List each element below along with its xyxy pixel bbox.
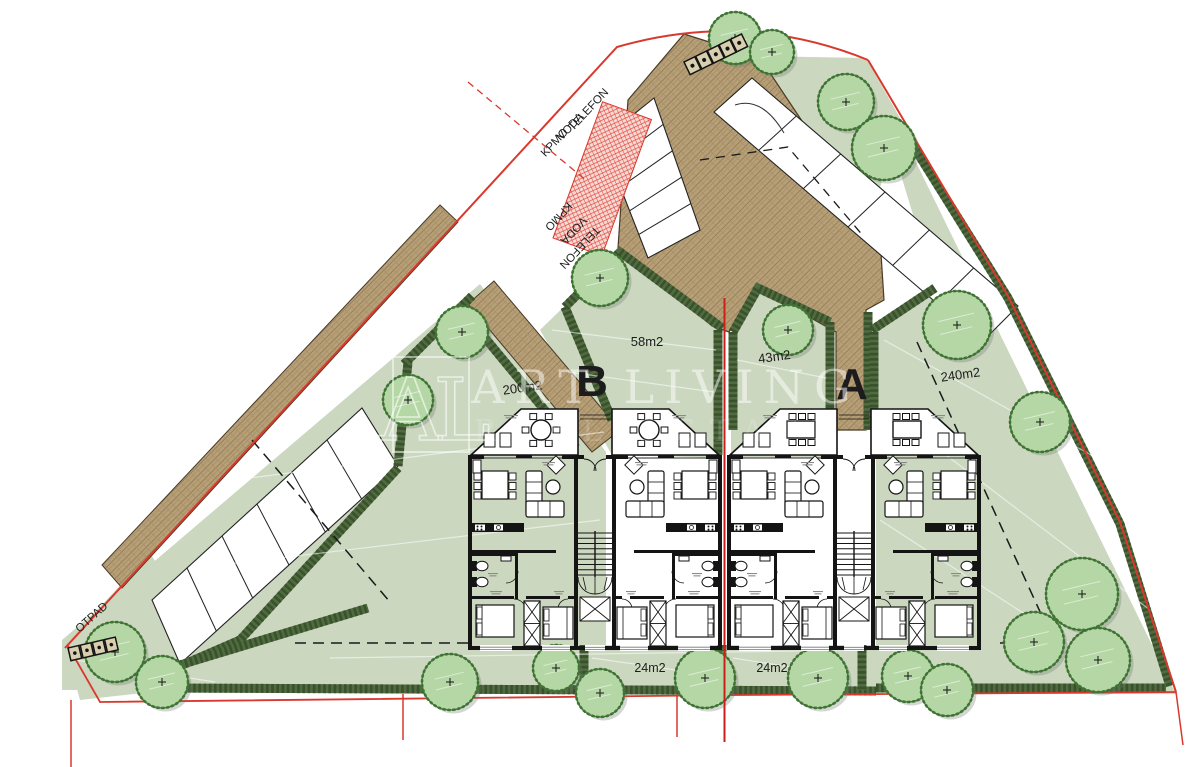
site-plan-image: BA200m258m243m2240m224m224m2TELEFONVODAK…: [0, 0, 1200, 767]
site-plan-svg: BA200m258m243m2240m224m224m2TELEFONVODAK…: [0, 0, 1200, 767]
building-label-A: A: [836, 360, 868, 409]
building-label-B: B: [576, 357, 608, 406]
building-A: [727, 409, 981, 651]
area-label-58m2: 58m2: [631, 334, 664, 349]
area-label-24m2-right: 24m2: [756, 661, 787, 675]
area-label-24m2-left: 24m2: [634, 661, 665, 675]
